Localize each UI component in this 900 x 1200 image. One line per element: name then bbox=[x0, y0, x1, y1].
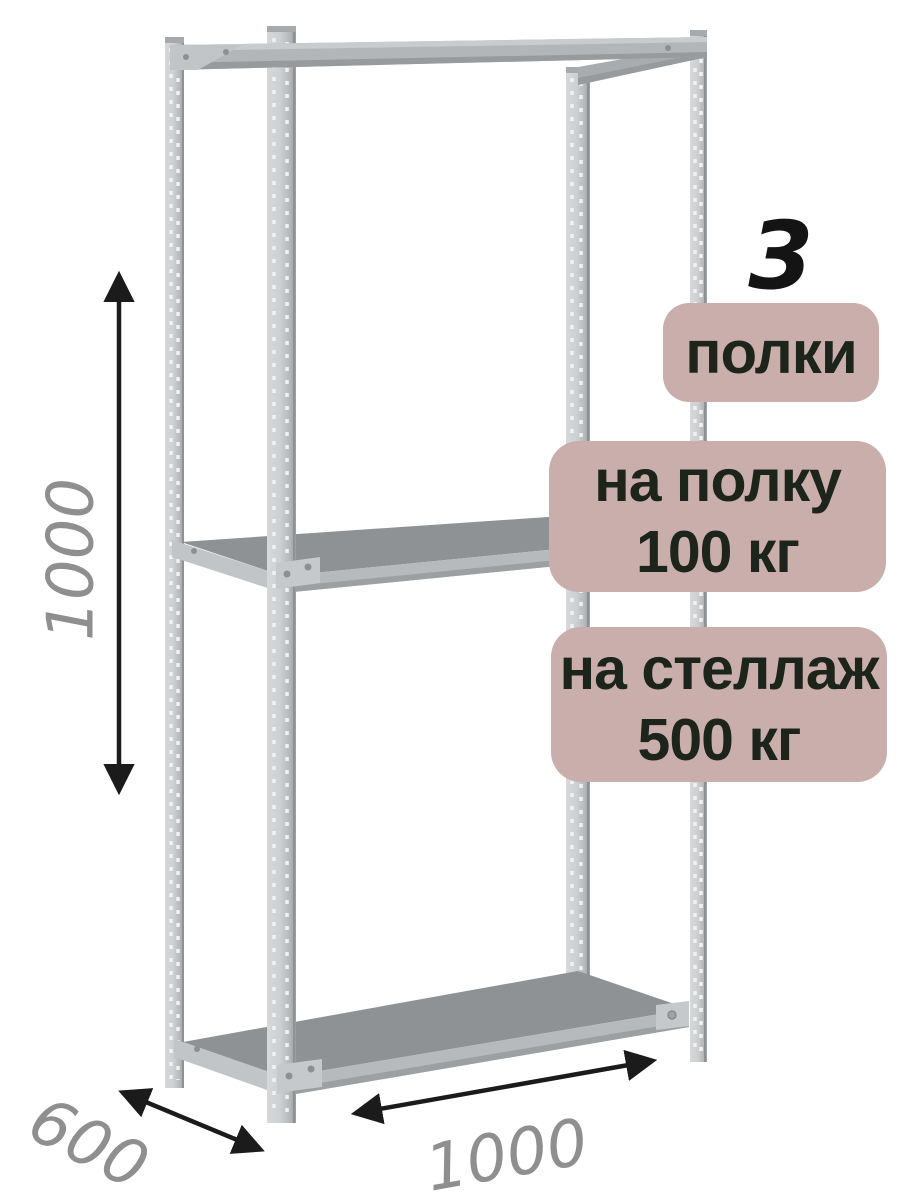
badge-per-rack-load: на стеллаж 500 кг bbox=[551, 627, 887, 782]
badge-shelves: полки bbox=[663, 303, 879, 402]
top-beams bbox=[170, 37, 707, 85]
height-dimension-label: 1000 bbox=[34, 471, 111, 647]
badge-per-shelf-load: на полку 100 кг bbox=[549, 441, 886, 592]
badge-per-rack-line2: 500 кг bbox=[638, 705, 801, 776]
shelf-count-number: 3 bbox=[722, 210, 840, 304]
badge-per-shelf-line2: 100 кг bbox=[636, 517, 799, 588]
badge-per-shelf-line1: на полку bbox=[594, 446, 841, 517]
shelving-rack-illustration bbox=[0, 0, 900, 1200]
post-back-left bbox=[165, 37, 184, 1088]
badge-shelves-label: полки bbox=[685, 317, 856, 389]
badge-per-rack-line1: на стеллаж bbox=[560, 634, 879, 705]
product-image: 3 полки на полку 100 кг на стеллаж 500 к… bbox=[0, 0, 900, 1200]
shelf-bottom bbox=[174, 971, 689, 1096]
